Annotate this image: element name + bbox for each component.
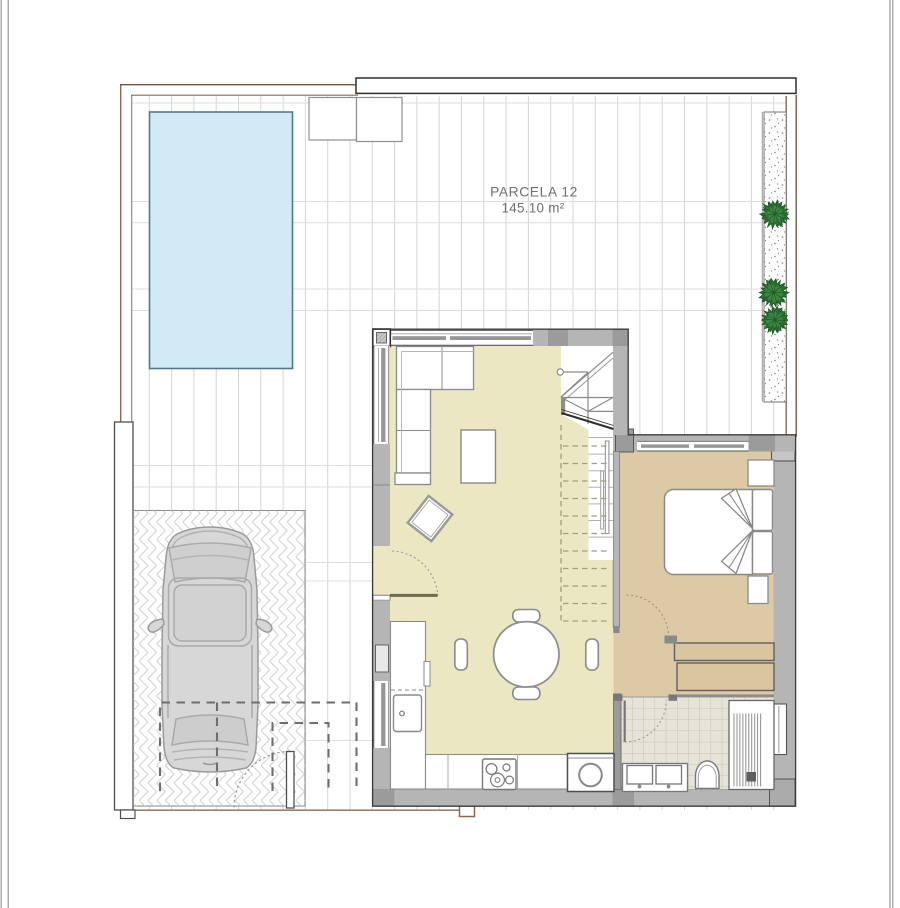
svg-text:PARCELA 12: PARCELA 12 xyxy=(490,185,578,200)
svg-text:145.10 m²: 145.10 m² xyxy=(502,201,565,216)
